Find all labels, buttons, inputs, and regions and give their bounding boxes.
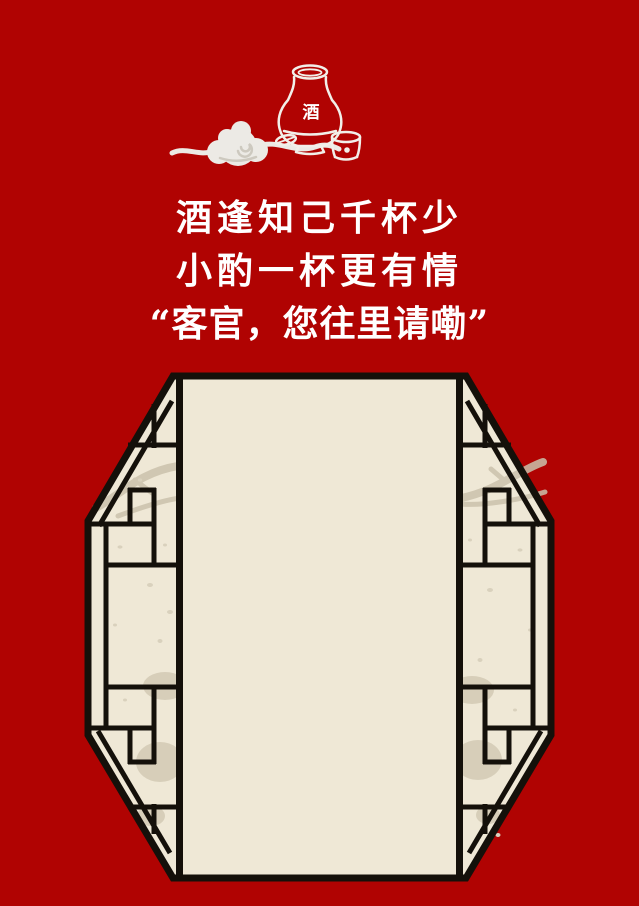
poster-artwork: 酒: [0, 0, 639, 906]
verse-line-1: 酒逢知己千杯少: [0, 192, 639, 245]
verse-line-3: “客官，您往里请嘞”: [0, 298, 639, 351]
lattice-window: [88, 373, 551, 881]
window-paper: [88, 376, 551, 878]
auspicious-cloud-icon: [172, 121, 339, 166]
poster-background: 酒: [0, 0, 639, 906]
jug-label: 酒: [303, 102, 320, 123]
verse-block: 酒逢知己千杯少 小酌一杯更有情 “客官，您往里请嘞”: [0, 192, 639, 351]
verse-line-2: 小酌一杯更有情: [0, 245, 639, 298]
